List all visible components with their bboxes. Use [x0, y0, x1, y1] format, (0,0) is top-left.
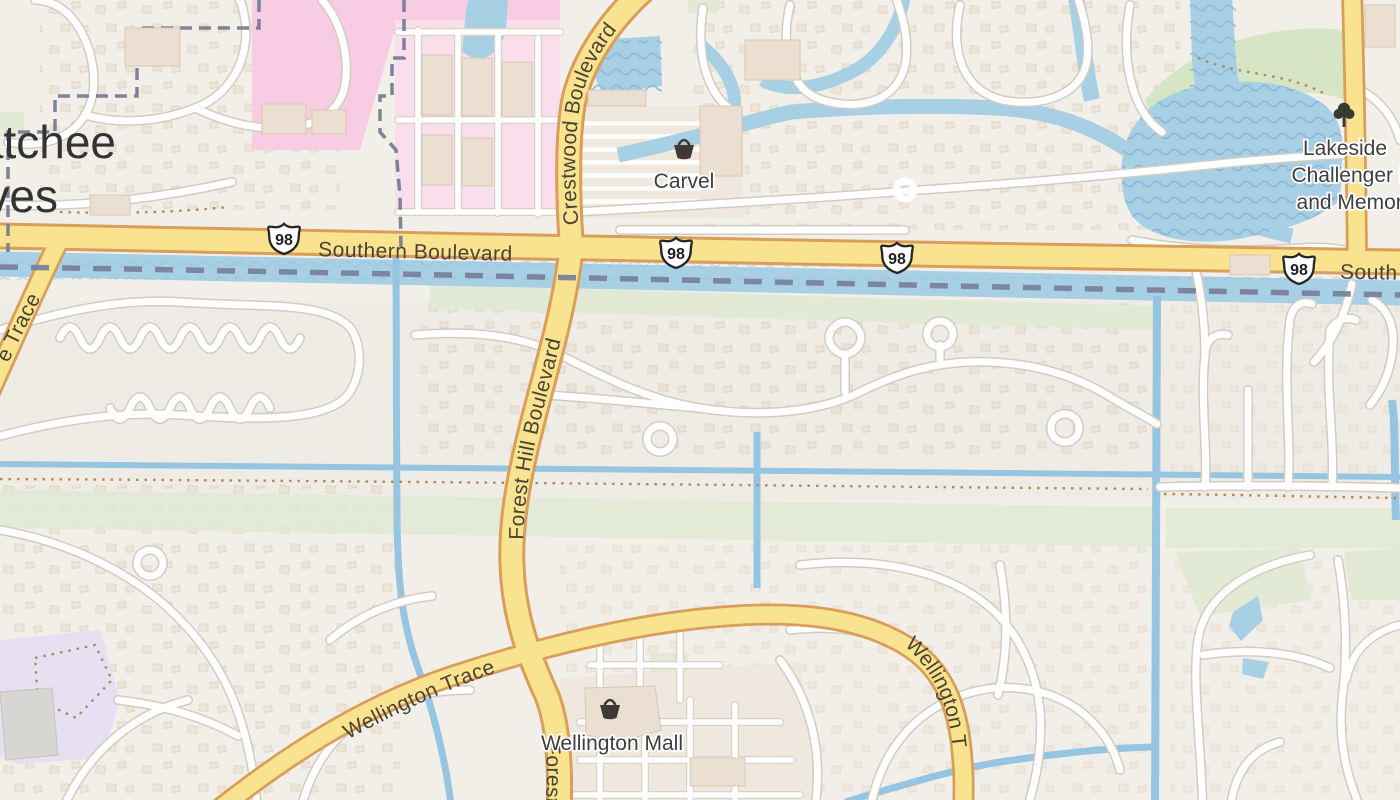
svg-text:98: 98: [667, 246, 685, 263]
campus-building: [0, 688, 58, 760]
wellington-mall-label: Wellington Mall: [541, 732, 683, 755]
svg-text:98: 98: [1290, 262, 1308, 279]
svg-text:98: 98: [888, 251, 906, 268]
lakeside-park-label: Lakeside Challenger Pa and Memori: [1291, 137, 1400, 214]
svg-text:98: 98: [275, 232, 293, 249]
southern-boulevard-label: Southern Boulevard: [318, 238, 513, 266]
carvel-label: Carvel: [654, 170, 715, 193]
map-svg: Southern Boulevard South Crestwood Boule…: [0, 0, 1400, 800]
southern-boulevard-label-fragment: South: [1340, 261, 1398, 285]
place-name-line2: ves: [0, 170, 58, 222]
svg-text:and Memori: and Memori: [1297, 191, 1400, 214]
svg-text:Lakeside: Lakeside: [1303, 137, 1387, 160]
place-name-line1: atchee: [0, 116, 116, 168]
svg-text:Challenger Pa: Challenger Pa: [1291, 164, 1400, 187]
map-canvas[interactable]: Southern Boulevard South Crestwood Boule…: [0, 0, 1400, 800]
